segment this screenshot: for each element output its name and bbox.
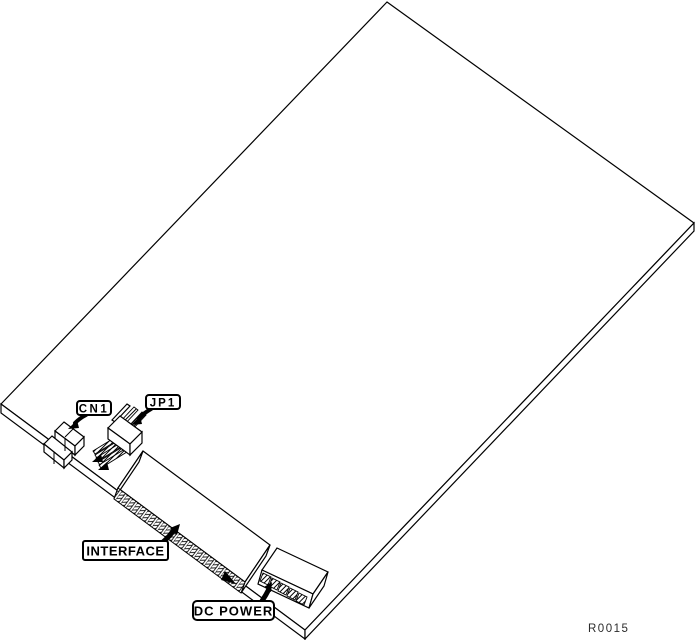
cn1-label: CN1 [79,404,110,416]
dc-power-label: DC POWER [194,604,274,619]
interface-label: INTERFACE [86,544,164,559]
ref-code: R0015 [588,623,629,635]
jp1-label: JP1 [150,398,176,410]
pcb-diagram: CN1 JP1 INTERFACE DC POWER R0015 [0,0,696,640]
pcb-diagram-canvas: CN1 JP1 INTERFACE DC POWER R0015 [0,0,696,640]
